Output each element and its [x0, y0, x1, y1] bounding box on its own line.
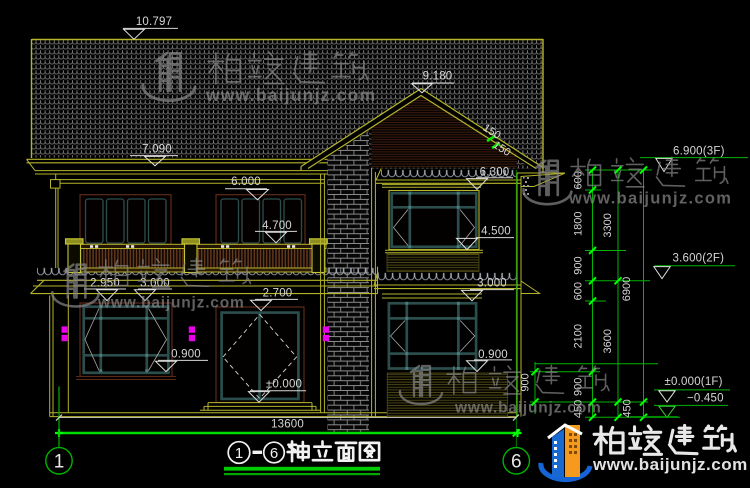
svg-text:3.000: 3.000: [477, 277, 507, 289]
svg-text:13600: 13600: [271, 419, 304, 431]
svg-text:9.180: 9.180: [423, 71, 453, 83]
svg-text:www.baijunjz.com: www.baijunjz.com: [568, 190, 732, 208]
svg-text:10.797: 10.797: [136, 16, 172, 28]
svg-text:3600: 3600: [602, 329, 614, 353]
svg-text:6: 6: [511, 452, 522, 473]
svg-text:900: 900: [573, 256, 585, 274]
svg-text:3300: 3300: [602, 213, 614, 237]
svg-text:900: 900: [520, 373, 532, 391]
svg-text:4.500: 4.500: [481, 226, 511, 238]
svg-text:www.baijunjz.com: www.baijunjz.com: [592, 455, 748, 474]
svg-text:450: 450: [622, 399, 634, 417]
svg-text:1800: 1800: [573, 212, 585, 236]
svg-text:6.300: 6.300: [480, 166, 510, 178]
svg-text:www.baijunjz.com: www.baijunjz.com: [454, 400, 602, 417]
svg-text:6: 6: [270, 445, 278, 462]
svg-text:6900: 6900: [621, 277, 633, 301]
svg-text:600: 600: [573, 282, 585, 300]
svg-text:1: 1: [54, 452, 65, 473]
svg-text:3.600(2F): 3.600(2F): [673, 253, 725, 265]
svg-text:7.090: 7.090: [142, 144, 172, 156]
svg-text:6.000: 6.000: [231, 176, 261, 188]
svg-text:www.baijunjz.com: www.baijunjz.com: [205, 85, 376, 105]
svg-text:0.900: 0.900: [478, 349, 508, 361]
svg-text:1: 1: [235, 445, 243, 462]
svg-text:2.700: 2.700: [263, 287, 293, 299]
svg-text:www.baijunjz.com: www.baijunjz.com: [97, 295, 245, 312]
svg-text:0.900: 0.900: [171, 348, 201, 360]
svg-text:−0.450: −0.450: [687, 393, 724, 405]
svg-text:900: 900: [573, 378, 585, 396]
svg-text:±0.000(1F): ±0.000(1F): [665, 376, 723, 388]
svg-text:4.700: 4.700: [262, 220, 292, 232]
svg-text:2100: 2100: [573, 324, 585, 348]
svg-text:6.900(3F): 6.900(3F): [673, 146, 725, 158]
svg-text:±0.000: ±0.000: [266, 378, 302, 390]
